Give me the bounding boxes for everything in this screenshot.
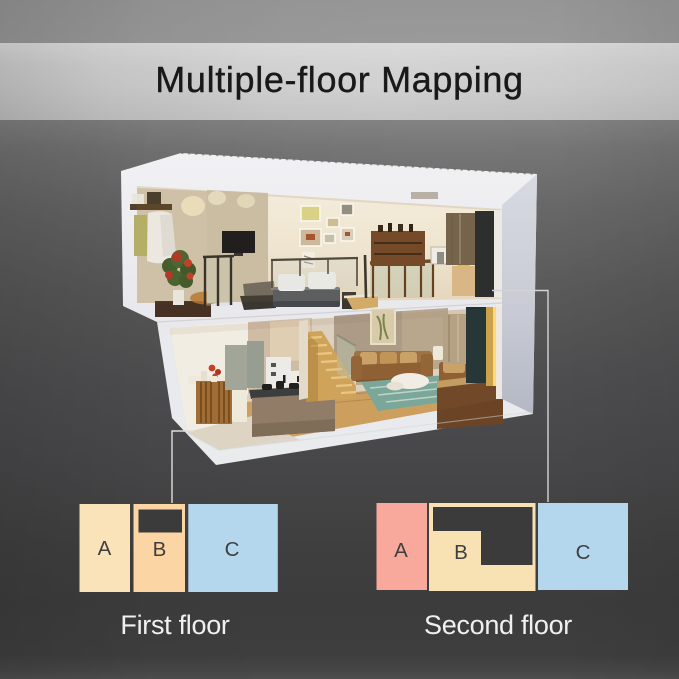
svg-text:A: A bbox=[98, 537, 112, 560]
svg-text:B: B bbox=[454, 541, 468, 564]
svg-text:B: B bbox=[153, 538, 167, 561]
svg-text:C: C bbox=[576, 541, 591, 564]
svg-text:C: C bbox=[225, 538, 240, 561]
svg-text:A: A bbox=[394, 539, 408, 562]
